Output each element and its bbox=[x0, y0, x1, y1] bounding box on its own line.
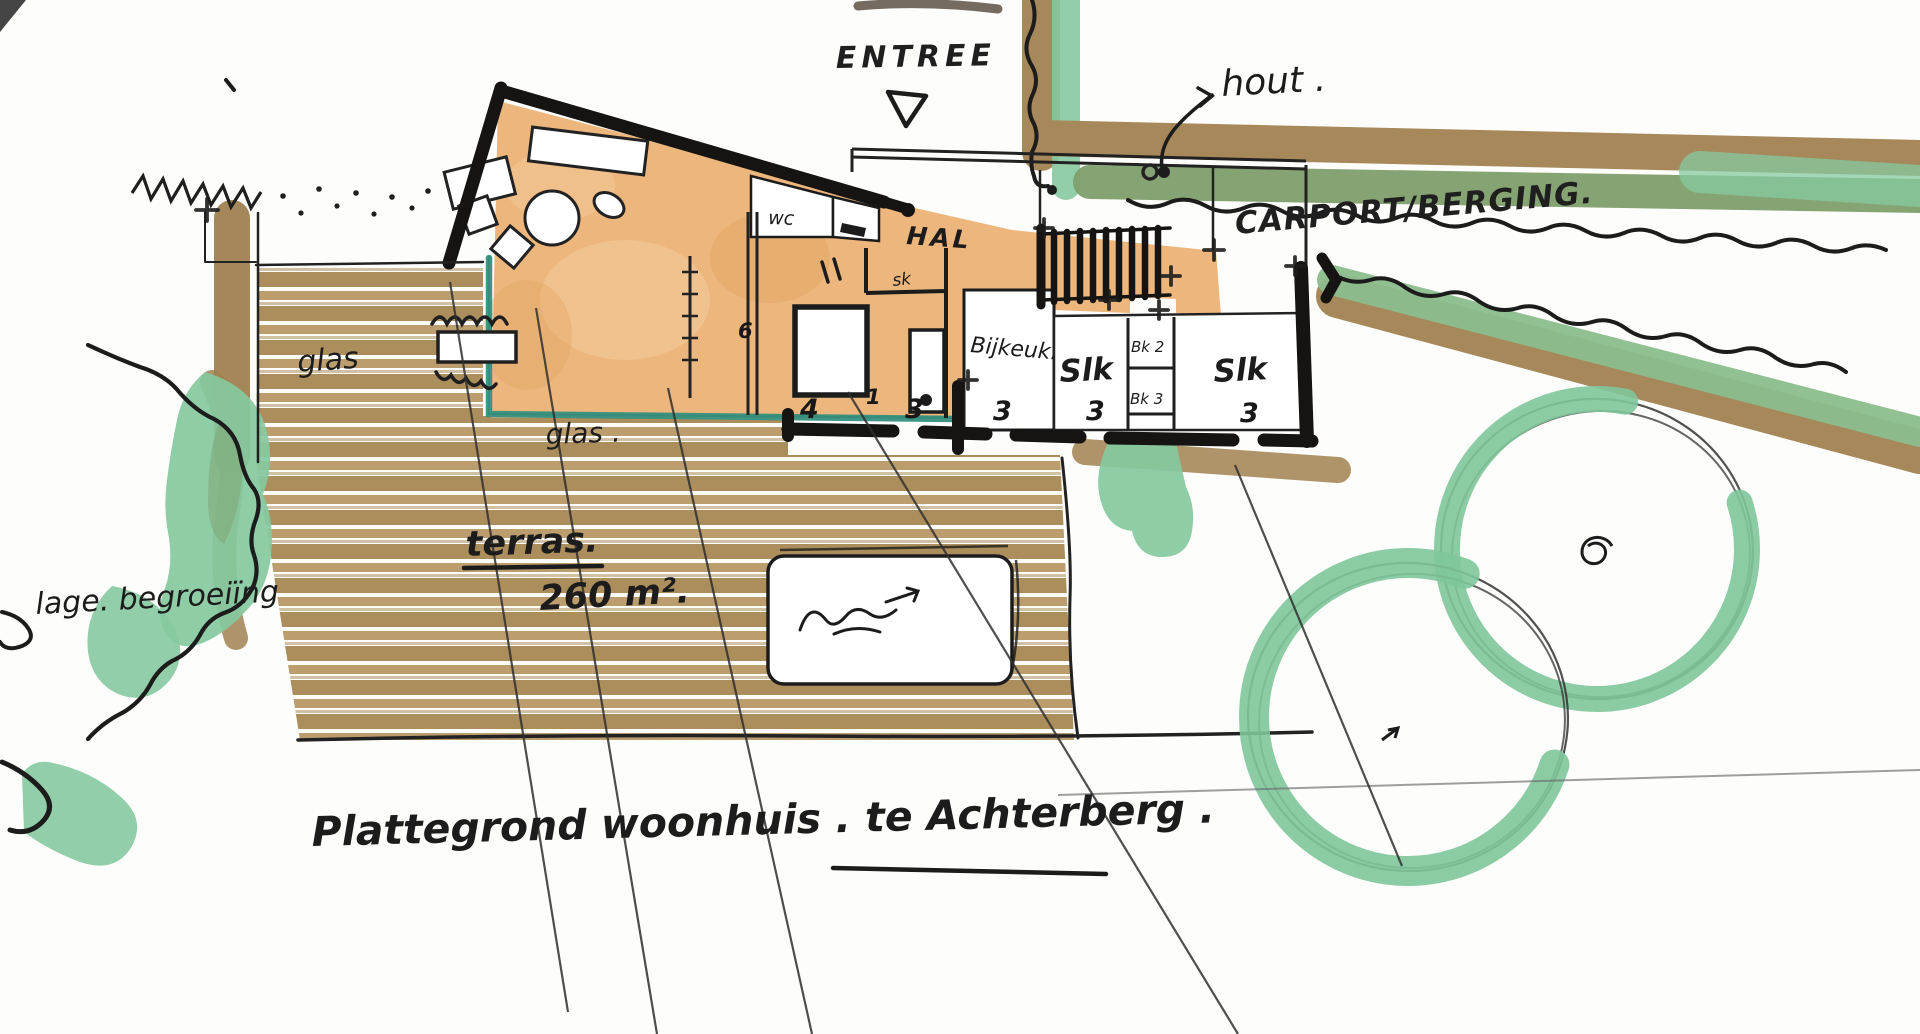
scribble-dots bbox=[280, 186, 431, 216]
label-vegetation: lage. begroeiïng bbox=[35, 574, 280, 622]
hedge-top-green-right bbox=[1700, 172, 1920, 186]
label-sk: sk bbox=[891, 269, 913, 291]
coffee-table bbox=[525, 191, 579, 245]
label-hout: hout . bbox=[1220, 59, 1327, 105]
tree-green-arc bbox=[1447, 399, 1747, 699]
caption-underline bbox=[833, 868, 1106, 874]
label-slaapkamer-right: Slk bbox=[1213, 351, 1271, 390]
label-entree: ENTREE bbox=[836, 38, 997, 76]
tree-large bbox=[1422, 379, 1773, 720]
hedge-top-dark-streak bbox=[858, 4, 998, 9]
tree-center-mark bbox=[1382, 728, 1398, 740]
label-wc: wc bbox=[768, 207, 795, 230]
label-bk2: Bk 2 bbox=[1131, 338, 1164, 356]
label-slaapkamer-left: Slk bbox=[1059, 351, 1117, 390]
corner-mark bbox=[0, 0, 26, 32]
entree-triangle bbox=[888, 92, 926, 126]
hedge-top-brown-band bbox=[1040, 138, 1920, 158]
tree-green-arc bbox=[1254, 563, 1562, 871]
terras-underline bbox=[464, 566, 602, 568]
label-glas-bottom: glas . bbox=[545, 415, 621, 451]
label-terras-area: 260 m². bbox=[538, 571, 690, 619]
tree-center-spiral bbox=[1582, 537, 1612, 563]
vegetation-blob-corner bbox=[22, 762, 137, 866]
label-bk3: Bk 3 bbox=[1130, 390, 1163, 408]
dim-1: 1 bbox=[866, 385, 881, 409]
label-glas-left: glas bbox=[296, 341, 360, 380]
dim-3d: 3 bbox=[1240, 398, 1259, 429]
hedge-ink-dot bbox=[1047, 185, 1057, 195]
floor-plan-sketch: ENTREE hout . CARPORT/BERGING. HAL wc sk… bbox=[0, 0, 1920, 1034]
dim-3b: 3 bbox=[993, 396, 1012, 427]
dim-6: 6 bbox=[738, 319, 753, 343]
wall-right bbox=[1301, 268, 1307, 441]
kitchen-island bbox=[795, 307, 867, 395]
outdoor-table bbox=[768, 546, 1018, 684]
dim-3a: 3 bbox=[905, 394, 924, 425]
scanned-sketch-page: ENTREE hout . CARPORT/BERGING. HAL wc sk… bbox=[0, 0, 1920, 1034]
edge-scribble-left bbox=[0, 612, 31, 648]
caption-title: Plattegrond woonhuis . te Achterberg . bbox=[311, 784, 1215, 856]
pen-tick bbox=[226, 80, 234, 90]
hout-arrow-dot bbox=[1158, 166, 1170, 178]
tree-small bbox=[1235, 550, 1582, 886]
dining-table bbox=[438, 332, 516, 362]
dim-4: 4 bbox=[799, 394, 819, 425]
hedge-green-drip bbox=[1098, 443, 1193, 557]
dim-3c: 3 bbox=[1086, 396, 1105, 427]
label-terras: terras. bbox=[465, 520, 599, 565]
wall-cap-blob bbox=[901, 203, 915, 217]
label-hal: HAL bbox=[906, 221, 973, 254]
